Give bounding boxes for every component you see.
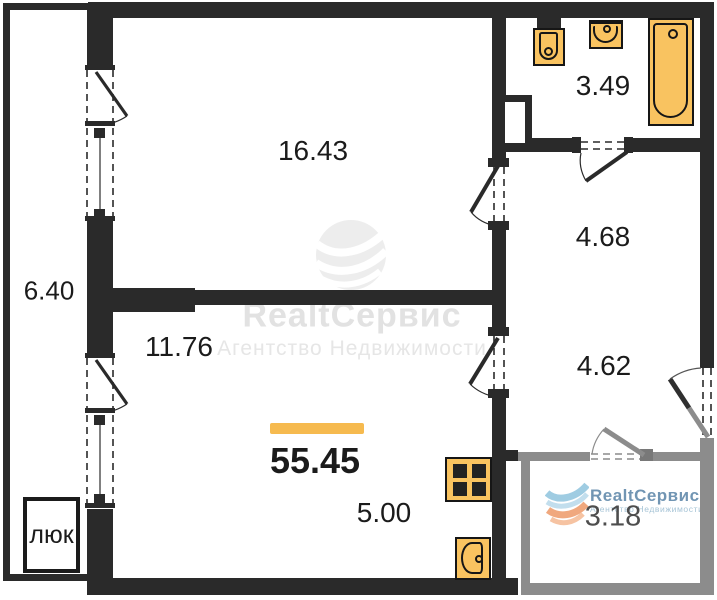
balcony-wall-segment bbox=[521, 583, 714, 595]
wall-segment bbox=[113, 288, 195, 312]
area-label-room-upper: 16.43 bbox=[278, 135, 348, 167]
total-area-accent-bar bbox=[270, 423, 364, 434]
stove bbox=[445, 457, 492, 502]
vent-shaft bbox=[498, 95, 532, 150]
wall-segment bbox=[492, 397, 506, 580]
wall-segment bbox=[3, 3, 10, 581]
wall-segment bbox=[87, 220, 113, 355]
wall-segment bbox=[502, 450, 518, 461]
balcony-window-lower bbox=[85, 353, 127, 508]
total-area-label: 55.45 bbox=[270, 440, 360, 482]
kitchen-sink bbox=[455, 537, 491, 580]
area-label-hall-lower: 4.62 bbox=[577, 350, 632, 382]
bathroom-sink bbox=[589, 20, 623, 49]
bathtub bbox=[648, 18, 694, 126]
area-label-room-lower: 11.76 bbox=[145, 331, 213, 363]
wall-segment bbox=[195, 290, 502, 305]
wall-segment bbox=[628, 138, 702, 152]
wall-segment bbox=[700, 2, 714, 368]
door-room-upper bbox=[471, 158, 509, 230]
wall-segment bbox=[3, 574, 88, 581]
balcony-wall-segment bbox=[645, 452, 702, 461]
area-label-balcony-right: 3.18 bbox=[585, 501, 641, 534]
wall-segment bbox=[492, 228, 506, 333]
wall-segment bbox=[88, 578, 518, 595]
door-entrance bbox=[670, 368, 711, 438]
area-label-hall-upper: 4.68 bbox=[576, 221, 631, 253]
wall-segment bbox=[87, 10, 113, 67]
watermark-tagline: Агентство Недвижимости bbox=[217, 337, 487, 361]
area-label-bathroom: 3.49 bbox=[576, 70, 631, 102]
wall-segment bbox=[88, 2, 714, 18]
balcony-wall-segment bbox=[700, 438, 714, 595]
balcony-wall-segment bbox=[521, 452, 530, 595]
balcony-window-upper bbox=[85, 65, 127, 221]
hatch-label: люк bbox=[29, 521, 73, 550]
door-bathroom bbox=[572, 137, 633, 181]
area-label-kitchen: 5.00 bbox=[357, 497, 412, 529]
area-label-balcony-left: 6.40 bbox=[24, 276, 75, 307]
brand-logo-icon bbox=[545, 477, 589, 527]
floor-plan: RealtСервис Агентство Недвижимости Realt… bbox=[0, 0, 717, 600]
watermark-logo-icon bbox=[315, 218, 387, 292]
door-balcony-right bbox=[591, 429, 653, 461]
toilet bbox=[533, 28, 565, 66]
hatch-box: люк bbox=[23, 497, 80, 573]
wall-segment bbox=[3, 3, 88, 10]
